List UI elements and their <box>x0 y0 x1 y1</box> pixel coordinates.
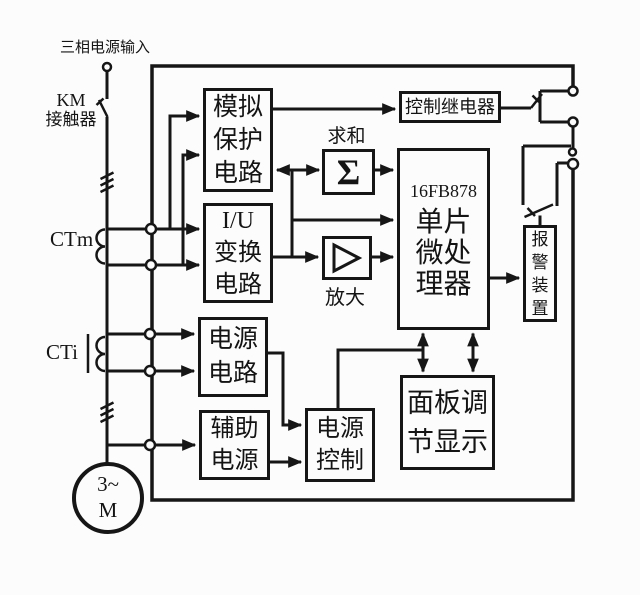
terminal-dot <box>103 63 111 71</box>
block-text: 节显示 <box>407 423 488 462</box>
chip-model-text: 16FB878 <box>410 179 477 203</box>
block-amplifier <box>322 236 372 280</box>
block-analog-protection: 模拟 保护 电路 <box>203 88 273 192</box>
block-text: 置 <box>532 297 549 320</box>
block-text: 电源 <box>211 445 259 477</box>
block-summator: Σ <box>322 149 375 195</box>
wire-ctm-to-analog-2 <box>183 155 199 265</box>
block-iu-converter: I/U 变换 电路 <box>203 203 273 303</box>
block-power-control: 电源 控制 <box>305 408 375 482</box>
block-text: 电路 <box>208 357 258 391</box>
block-text: 电源 <box>316 413 364 445</box>
block-text: 控制继电器 <box>405 94 495 120</box>
block-text: 电路 <box>213 157 263 190</box>
block-control-relay: 控制继电器 <box>399 91 501 123</box>
motor-m-text: M <box>74 497 142 523</box>
label-three-phase-input: 三相电源输入 <box>55 36 155 57</box>
label-ctm: CTm <box>50 227 93 252</box>
block-microprocessor: 16FB878 单片 微处 理器 <box>397 148 490 330</box>
label-km-contactor: KM 接触器 <box>39 90 103 130</box>
relay-contact-icon <box>500 91 569 122</box>
block-text: 辅助 <box>211 413 259 445</box>
motor-phase-text: 3~ <box>74 471 142 497</box>
alarm-contact-icon <box>523 146 568 225</box>
block-text: 控制 <box>316 445 364 477</box>
block-text: 面板调 <box>407 384 488 423</box>
wire-power-to-pctl <box>268 353 301 425</box>
block-text: 微处 <box>415 238 471 269</box>
block-panel-display: 面板调 节显示 <box>400 375 495 470</box>
ct-coil-icon <box>88 334 105 373</box>
terminal-dot <box>569 118 578 127</box>
block-text: 变换 <box>214 237 262 269</box>
label-km: KM <box>39 90 103 110</box>
block-text: 装 <box>532 274 549 297</box>
block-text: 单片 <box>415 207 471 238</box>
block-text: 电源 <box>208 323 258 357</box>
ct-coil-icon <box>97 230 106 264</box>
label-amplify: 放大 <box>315 281 375 310</box>
block-text: 报 <box>532 228 549 251</box>
terminal-dot <box>568 159 578 169</box>
motor-label: 3~ M <box>74 471 142 523</box>
block-aux-power: 辅助 电源 <box>199 410 270 480</box>
block-text: I/U <box>222 205 254 237</box>
fuse-icon <box>101 173 114 193</box>
block-text: 电路 <box>214 269 262 301</box>
terminal-dot <box>569 87 578 96</box>
block-text: 警 <box>532 251 549 274</box>
junction-dot <box>146 224 156 234</box>
junction-dot <box>145 366 155 376</box>
sigma-icon: Σ <box>337 152 361 192</box>
block-text: 模拟 <box>213 91 263 124</box>
junction-dot <box>146 260 156 270</box>
wiring-diagram: 模拟 保护 电路 I/U 变换 电路 电源 电路 辅助 电源 电源 控制 面板调… <box>0 0 640 595</box>
junction-dot <box>145 329 155 339</box>
block-text: 保护 <box>213 124 263 157</box>
block-alarm-device: 报 警 装 置 <box>523 225 557 322</box>
block-power-circuit: 电源 电路 <box>198 317 268 397</box>
fuse-icon <box>101 403 114 423</box>
label-contactor: 接触器 <box>39 110 103 130</box>
label-summation: 求和 <box>318 121 375 148</box>
block-text: 理器 <box>415 269 471 300</box>
terminal-dot <box>569 149 576 156</box>
junction-dot <box>145 440 155 450</box>
label-cti: CTi <box>46 340 78 365</box>
